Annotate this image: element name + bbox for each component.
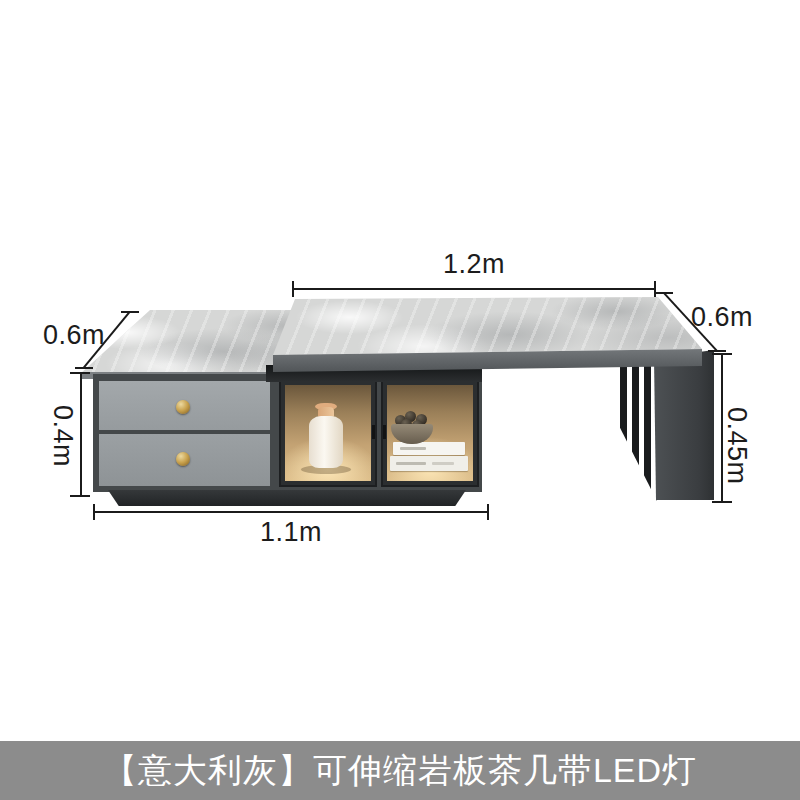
dim-chest-height-line	[80, 373, 82, 497]
dim-tick	[654, 281, 656, 297]
book-spine-mark	[432, 462, 454, 465]
dim-tick	[708, 350, 726, 352]
dim-chest-length-label: 1.1m	[94, 518, 488, 546]
dim-tick	[70, 372, 90, 374]
upper-stone-top	[272, 297, 703, 355]
drawer-knob-bottom	[176, 452, 190, 466]
door-handle-right	[383, 425, 386, 439]
book-bottom	[390, 456, 468, 471]
leg-slats	[620, 360, 657, 501]
dim-top-length-line	[293, 288, 655, 290]
product-dimension-diagram: 1.2m 0.6m 0.6m 0.4m 0.45m 1.1m	[0, 0, 800, 800]
caption-text: 【意大利灰】可伸缩岩板茶几带LED灯	[103, 748, 697, 794]
dim-top-depth-label: 0.6m	[687, 303, 757, 331]
book-spine-mark	[396, 462, 426, 465]
dim-tick	[712, 353, 732, 355]
bowl-body	[391, 424, 433, 444]
dim-chest-height-label: 0.4m	[49, 405, 77, 463]
glass-compartment-left	[285, 385, 371, 481]
caption-bar: 【意大利灰】可伸缩岩板茶几带LED灯	[0, 741, 800, 800]
dim-chest-length-line	[94, 511, 488, 513]
cabinet-body	[93, 374, 482, 492]
dim-base-depth-label: 0.6m	[39, 321, 109, 349]
dim-tick	[292, 281, 294, 297]
glass-door-left	[279, 379, 377, 487]
dim-top-length-label: 1.2m	[293, 250, 655, 278]
door-handle-left	[372, 425, 375, 439]
plinth-base	[108, 490, 466, 506]
glass-compartment-right	[387, 385, 473, 481]
book-spine-mark	[400, 447, 426, 450]
decor-bowl	[391, 411, 435, 445]
dim-tick	[655, 292, 673, 294]
ceramic-vase-body	[309, 416, 343, 468]
drawer-knob-top	[176, 400, 190, 414]
glass-door-right	[381, 379, 479, 487]
dim-tick	[712, 501, 732, 503]
leg-front-panel	[654, 350, 714, 500]
dim-leg-height-label: 0.45m	[723, 407, 751, 465]
dim-tick	[121, 311, 139, 313]
dim-tick	[75, 367, 93, 369]
dim-tick	[70, 495, 90, 497]
